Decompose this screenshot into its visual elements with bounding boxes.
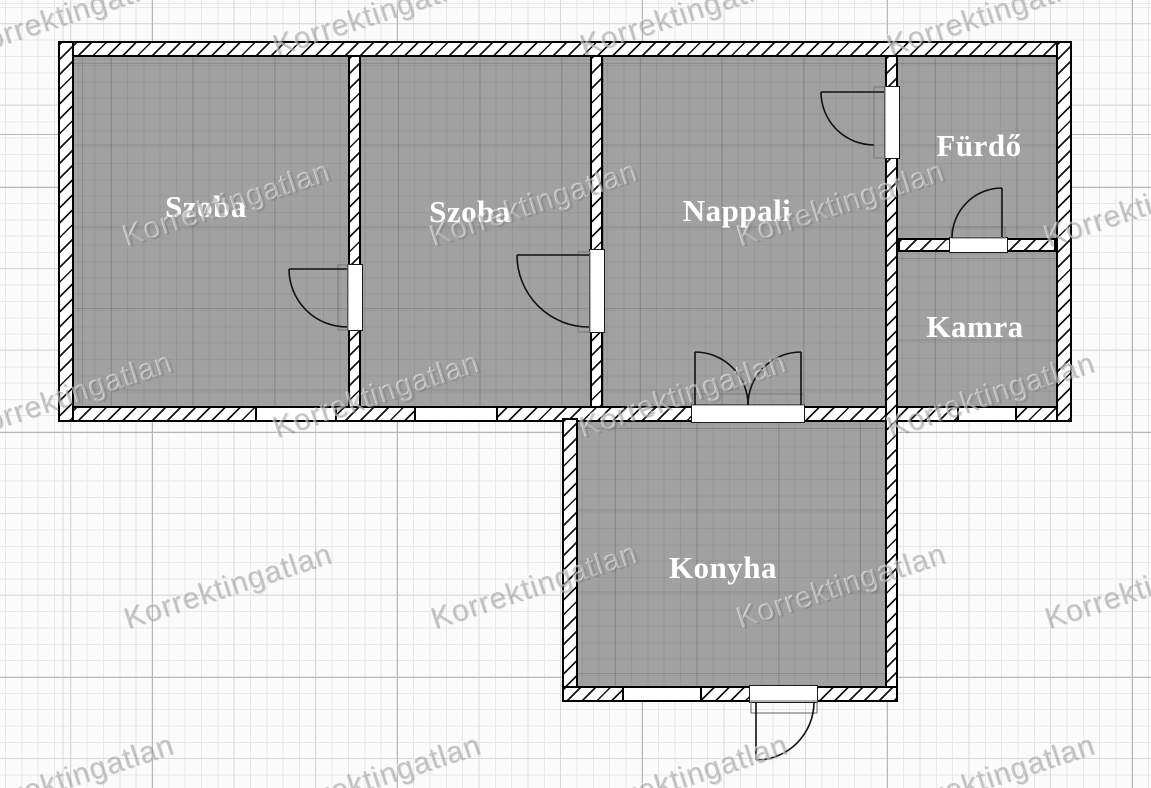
- door-opening-furdo-kamra: [949, 237, 1008, 253]
- door-opening-szoba1-szoba2: [347, 264, 363, 331]
- door-opening-szoba2-nappali: [589, 249, 605, 333]
- watermark-text: Korrektingatlan: [883, 728, 1100, 788]
- room-szoba-1: [74, 57, 348, 406]
- wall-konyha-left: [562, 418, 578, 702]
- door-opening-konyha-exterior: [749, 685, 818, 703]
- room-nappali: [603, 57, 885, 406]
- door-arc-konyha-exterior: [756, 702, 814, 760]
- room-label-nappali: Nappali: [683, 193, 792, 229]
- watermark-text: Korrektingatlan: [576, 728, 793, 788]
- window-szoba-1: [255, 406, 337, 422]
- room-label-furdo: Fürdő: [936, 128, 1021, 164]
- door-opening-nappali-furdo: [884, 86, 900, 159]
- watermark-text: Korrektingatlan: [269, 728, 486, 788]
- wall-partition-szoba1-szoba2: [348, 55, 361, 408]
- wall-partition-szoba2-nappali: [590, 55, 603, 408]
- room-label-konyha: Konyha: [669, 550, 777, 586]
- room-label-szoba-1: Szoba: [165, 189, 247, 225]
- floor-plan: Szoba Szoba Nappali Fürdő Kamra Konyha K…: [0, 0, 1151, 788]
- room-szoba-2: [361, 57, 590, 406]
- wall-left: [58, 41, 74, 422]
- room-label-szoba-2: Szoba: [429, 194, 511, 230]
- door-opening-nappali-konyha: [691, 404, 805, 423]
- wall-konyha-bottom: [562, 686, 898, 702]
- window-szoba-2: [414, 406, 498, 422]
- wall-top: [58, 41, 1072, 57]
- wall-right: [1056, 41, 1072, 422]
- room-label-kamra: Kamra: [926, 309, 1023, 345]
- window-kamra: [957, 406, 1017, 422]
- watermark-text: Korrektingatlan: [120, 537, 337, 636]
- watermark-text: Korrektingatlan: [0, 728, 178, 788]
- window-konyha: [622, 686, 702, 702]
- watermark-text: Korrektingatlan: [1041, 537, 1151, 636]
